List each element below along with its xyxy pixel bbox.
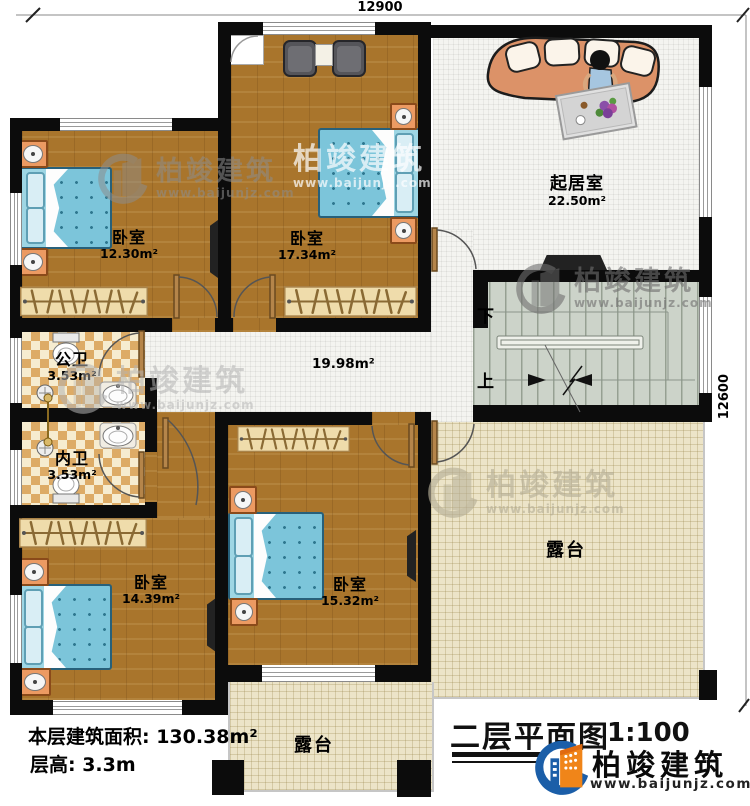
wall-segment: [218, 22, 231, 332]
room-name: 卧室: [90, 229, 168, 247]
pillow: [26, 172, 45, 209]
nightstand: [19, 558, 49, 586]
room-name: 卧室: [112, 574, 190, 592]
tv-bedroom-bm: [407, 530, 416, 582]
wall-segment: [418, 412, 431, 682]
wall-segment: [215, 318, 233, 332]
wall-segment: [22, 408, 145, 422]
pillow: [234, 517, 253, 556]
floor-area-text: 本层建筑面积: 130.38m²: [28, 722, 258, 749]
hallway-floor: [145, 332, 431, 412]
terrace-bottom-label: 露台: [294, 731, 334, 757]
window: [10, 193, 22, 265]
pillow: [24, 626, 43, 664]
hallway-nook-floor: [431, 230, 473, 422]
side-table: [315, 44, 333, 66]
room-area: 15.32m²: [310, 594, 390, 608]
pillow: [234, 555, 253, 594]
tv-living-room: [540, 255, 607, 270]
room-area: 17.34m²: [268, 248, 346, 262]
wall-segment: [375, 665, 431, 682]
tv-bedroom-tl: [210, 220, 218, 278]
chair-seat: [337, 46, 361, 72]
room-area: 12.30m²: [90, 247, 168, 261]
dimension-right: 12600: [717, 374, 732, 419]
wall-segment: [276, 318, 431, 332]
lamp-icon: [23, 253, 43, 271]
bedroom-bl-label: 卧室 14.39m²: [112, 574, 190, 606]
bed-bedroom-tm: [318, 128, 420, 218]
window: [262, 667, 375, 682]
brand-website: www.baijunjz.com: [590, 776, 750, 792]
bedroom-bm-label: 卧室 15.32m²: [310, 576, 390, 608]
nightstand: [230, 598, 258, 626]
lamp-icon: [23, 145, 43, 163]
door-gap-tl: [172, 318, 215, 332]
nightstand: [19, 668, 51, 696]
wall-segment: [215, 665, 262, 682]
armchair: [332, 40, 366, 77]
lamp-icon: [395, 222, 412, 239]
bed-surface: [20, 586, 110, 668]
room-name: 公卫: [36, 351, 108, 369]
title-underline: [452, 752, 542, 757]
stairs-up-label: 上: [477, 367, 494, 392]
hallway-area-label: 19.98m²: [312, 356, 375, 372]
lamp-icon: [24, 563, 44, 581]
corner-cabinet: [228, 35, 264, 65]
wall-segment: [473, 405, 712, 422]
living-room-label: 起居室 22.50m²: [537, 175, 617, 208]
window: [699, 87, 712, 217]
door-gap-tm: [233, 318, 276, 332]
bed-bedroom-bl: [18, 584, 112, 670]
bed-surface: [230, 514, 322, 598]
pillow: [24, 589, 43, 627]
lamp-icon: [235, 603, 253, 621]
floor-plan-canvas: 卧室 12.30m² 卧室 17.34m² 起居室 22.50m² 公卫 3.5…: [0, 0, 750, 806]
bath-public-label: 公卫 3.53m²: [36, 351, 108, 383]
room-area: 22.50m²: [537, 194, 617, 208]
wall-segment: [10, 700, 53, 715]
pillow: [395, 172, 414, 212]
floor-height-text: 层高: 3.3m: [30, 750, 136, 777]
wall-segment: [420, 25, 712, 38]
wall-segment: [473, 270, 700, 282]
bed-surface: [320, 130, 418, 216]
lamp-icon: [395, 108, 412, 125]
bedroom-tl-label: 卧室 12.30m²: [90, 229, 168, 261]
pillow: [26, 207, 45, 244]
wall-segment: [418, 22, 431, 332]
door-gap-bm: [372, 412, 415, 425]
wall-segment: [172, 118, 218, 131]
chair-seat: [288, 46, 312, 72]
room-area: 14.39m²: [112, 592, 190, 606]
terrace-pillar: [397, 760, 431, 797]
stairs-down-label: 下: [477, 302, 494, 327]
nightstand: [229, 486, 257, 514]
title-underline: [452, 761, 542, 763]
window: [10, 338, 22, 403]
window: [60, 118, 172, 131]
bedroom-tm-label: 卧室 17.34m²: [268, 230, 346, 262]
nightstand: [18, 248, 48, 276]
nightstand: [18, 140, 48, 168]
terrace-pillar: [699, 670, 717, 700]
armchair: [283, 40, 317, 77]
terrace-right-label: 露台: [546, 536, 586, 562]
stairs-floor: [473, 282, 700, 405]
room-area: 3.53m²: [36, 369, 108, 383]
lamp-icon: [24, 673, 46, 691]
wall-segment: [145, 378, 157, 452]
room-name: 内卫: [36, 450, 108, 468]
lamp-icon: [234, 491, 252, 509]
dimension-top: 12900: [320, 0, 440, 15]
wall-segment: [10, 505, 157, 518]
terrace-pillar: [212, 760, 244, 795]
corridor-floor: [157, 412, 215, 518]
window: [53, 701, 182, 715]
bath-private-label: 内卫 3.53m²: [36, 450, 108, 482]
nightstand: [390, 103, 417, 130]
window: [263, 22, 375, 35]
window: [10, 595, 22, 663]
room-name: 起居室: [537, 175, 617, 194]
pillow: [395, 133, 414, 173]
room-name: 卧室: [268, 230, 346, 248]
wall-segment: [215, 412, 372, 425]
window: [699, 297, 712, 393]
brand-logo: [534, 736, 592, 800]
nightstand: [390, 217, 417, 244]
wall-segment: [182, 700, 228, 715]
window: [10, 450, 22, 505]
corridor-door-gap-floor: [145, 452, 157, 502]
room-name: 卧室: [310, 576, 390, 594]
room-area: 3.53m²: [36, 468, 108, 482]
wall-segment: [145, 318, 157, 332]
